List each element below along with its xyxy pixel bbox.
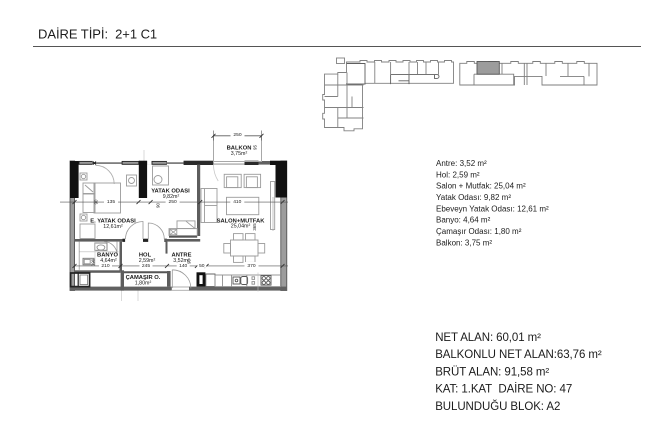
svg-text:4,64m²: 4,64m² <box>100 258 117 264</box>
svg-text:BALKONLU NET ALAN:63,76 m²: BALKONLU NET ALAN:63,76 m² <box>435 349 602 361</box>
svg-text:95: 95 <box>253 145 258 150</box>
svg-text:12,61m²: 12,61m² <box>103 224 123 230</box>
svg-text:135: 135 <box>107 199 115 205</box>
svg-text:90: 90 <box>94 199 99 204</box>
svg-text:Banyo: 4,64 m²: Banyo: 4,64 m² <box>436 216 491 225</box>
svg-text:Antre: 3,52 m²: Antre: 3,52 m² <box>436 159 487 168</box>
svg-text:Yatak Odası: 9,82 m²: Yatak Odası: 9,82 m² <box>436 193 511 202</box>
svg-text:Hol: 2,59 m²: Hol: 2,59 m² <box>436 170 480 179</box>
svg-text:2,59m²: 2,59m² <box>139 258 156 264</box>
svg-text:DAİRE TİPİ: 2+1 C1: DAİRE TİPİ: 2+1 C1 <box>38 26 157 41</box>
svg-text:50: 50 <box>199 263 205 269</box>
svg-text:Ebeveyn Yatak Odası: 12,61 m²: Ebeveyn Yatak Odası: 12,61 m² <box>436 204 549 213</box>
svg-text:90: 90 <box>156 203 161 208</box>
svg-text:25,04m²: 25,04m² <box>231 223 251 229</box>
svg-text:BULUNDUĞU BLOK: A2: BULUNDUĞU BLOK: A2 <box>435 400 560 413</box>
svg-text:Salon + Mutfak: 25,04 m²: Salon + Mutfak: 25,04 m² <box>436 182 526 191</box>
svg-text:3,52m²: 3,52m² <box>173 258 190 264</box>
svg-text:370: 370 <box>247 263 255 269</box>
svg-text:250: 250 <box>233 132 241 138</box>
svg-text:3,75m²: 3,75m² <box>231 151 248 157</box>
svg-text:1,80m²: 1,80m² <box>135 281 152 287</box>
svg-text:Balkon: 3,75 m²: Balkon: 3,75 m² <box>436 238 492 247</box>
svg-text:BRÜT ALAN: 91,58 m²: BRÜT ALAN: 91,58 m² <box>435 367 549 379</box>
svg-text:250: 250 <box>169 199 177 205</box>
svg-text:9,82m²: 9,82m² <box>163 194 180 200</box>
svg-text:190: 190 <box>91 258 96 266</box>
svg-text:Çamaşır Odası: 1,80 m²: Çamaşır Odası: 1,80 m² <box>436 227 522 236</box>
svg-text:KAT: 1.KAT DAİRE NO: 47: KAT: 1.KAT DAİRE NO: 47 <box>435 383 572 396</box>
svg-text:NET ALAN: 60,01 m²: NET ALAN: 60,01 m² <box>435 332 541 344</box>
svg-text:410: 410 <box>233 199 241 205</box>
